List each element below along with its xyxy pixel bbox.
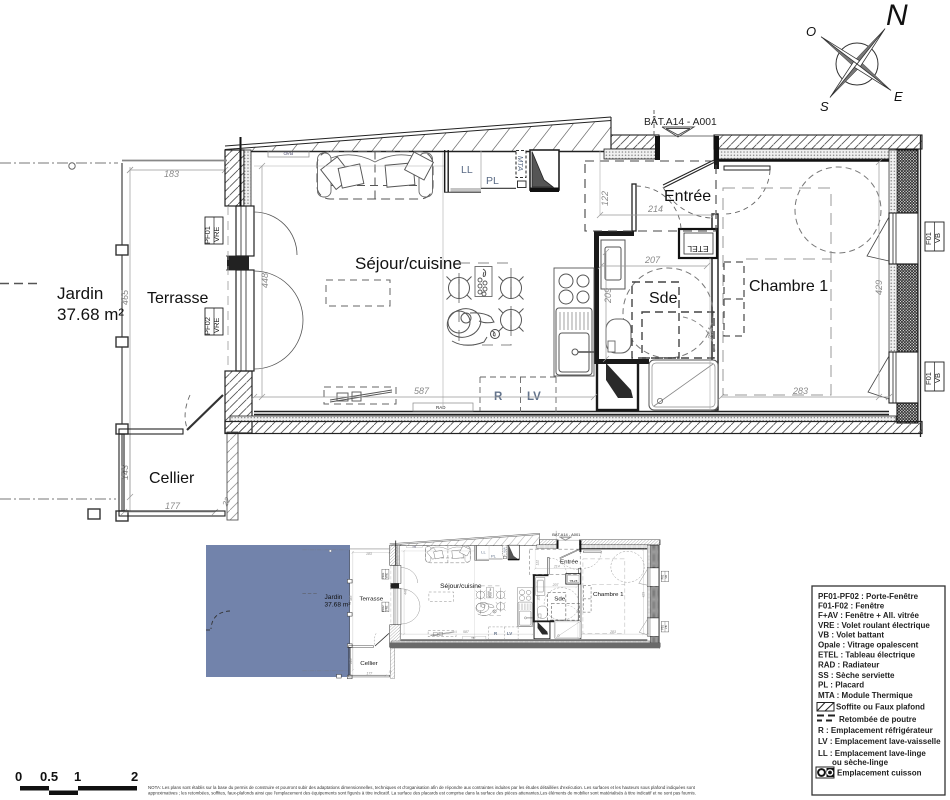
svg-text:PF01-PF02 : Porte-Fenêtre: PF01-PF02 : Porte-Fenêtre xyxy=(818,592,919,601)
svg-text:Entrée: Entrée xyxy=(664,188,711,205)
svg-text:429: 429 xyxy=(874,280,884,295)
svg-text:Séjour/cuisine: Séjour/cuisine xyxy=(355,254,462,273)
svg-text:ETEL: ETEL xyxy=(687,244,709,254)
svg-text:VB : Volet battant: VB : Volet battant xyxy=(818,631,884,640)
svg-text:RAD: RAD xyxy=(436,405,446,410)
svg-text:VRE: VRE xyxy=(212,318,221,333)
svg-text:448: 448 xyxy=(260,273,270,288)
svg-text:PF01: PF01 xyxy=(203,226,212,244)
svg-text:143: 143 xyxy=(120,465,130,480)
svg-text:209: 209 xyxy=(603,288,613,304)
svg-text:R : Emplacement réfrigérateur: R : Emplacement réfrigérateur xyxy=(818,726,933,735)
svg-text:approximatives ; les retombées: approximatives ; les retombées, soffites… xyxy=(148,791,696,796)
svg-text:F01-F02 : Fenêtre: F01-F02 : Fenêtre xyxy=(818,602,885,611)
svg-text:SS : Sèche serviette: SS : Sèche serviette xyxy=(818,671,895,680)
svg-text:PL : Placard: PL : Placard xyxy=(818,680,864,689)
svg-text:O: O xyxy=(806,24,816,39)
svg-text:LL : Emplacement lave-linge: LL : Emplacement lave-linge xyxy=(818,749,926,758)
svg-text:VB: VB xyxy=(933,233,942,243)
svg-text:183: 183 xyxy=(164,169,179,179)
svg-text:NOTA: Les plans sont établis s: NOTA: Les plans sont établis sur la base… xyxy=(148,785,696,790)
svg-text:F01: F01 xyxy=(924,232,933,245)
svg-text:MTA : Module Thermique: MTA : Module Thermique xyxy=(818,691,913,700)
svg-text:ETEL : Tableau électrique: ETEL : Tableau électrique xyxy=(818,651,916,660)
svg-text:N: N xyxy=(886,0,908,32)
svg-text:RAD: RAD xyxy=(283,151,293,156)
svg-text:Retombée de poutre: Retombée de poutre xyxy=(839,715,917,724)
svg-text:PF02: PF02 xyxy=(203,317,212,335)
svg-text:Cellier: Cellier xyxy=(149,470,195,487)
svg-text:Jardin: Jardin xyxy=(57,284,103,303)
svg-text:S: S xyxy=(820,99,829,114)
svg-text:VB: VB xyxy=(933,373,942,383)
svg-text:0.5: 0.5 xyxy=(40,769,58,784)
svg-text:37.68 m²: 37.68 m² xyxy=(57,305,124,324)
svg-text:RAD : Radiateur: RAD : Radiateur xyxy=(818,661,879,670)
svg-text:ou sèche-linge: ou sèche-linge xyxy=(832,758,889,767)
svg-text:465: 465 xyxy=(120,289,130,305)
svg-text:2: 2 xyxy=(131,769,138,784)
svg-text:Emplacement cuisson: Emplacement cuisson xyxy=(837,768,922,777)
svg-text:E: E xyxy=(894,89,903,104)
svg-text:LL: LL xyxy=(461,164,473,176)
svg-text:177: 177 xyxy=(165,501,181,511)
svg-text:Terrasse: Terrasse xyxy=(147,290,208,307)
svg-text:BÂT.A14 - A001: BÂT.A14 - A001 xyxy=(644,115,717,128)
svg-text:VRE : Volet roulant électrique: VRE : Volet roulant électrique xyxy=(818,621,930,630)
svg-text:F01: F01 xyxy=(924,372,933,385)
svg-text:LV : Emplacement lave-vaissell: LV : Emplacement lave-vaisselle xyxy=(818,737,941,746)
svg-text:MTA: MTA xyxy=(516,156,525,171)
svg-text:Chambre 1: Chambre 1 xyxy=(749,278,828,295)
svg-text:254: 254 xyxy=(708,327,715,340)
svg-text:587: 587 xyxy=(414,386,430,396)
svg-text:VRE: VRE xyxy=(212,227,221,242)
svg-text:214: 214 xyxy=(647,204,663,214)
svg-text:F+AV : Fenêtre + All. vitrée: F+AV : Fenêtre + All. vitrée xyxy=(818,611,919,620)
svg-text:283: 283 xyxy=(792,386,808,396)
svg-text:Opale : Vitrage opalescent: Opale : Vitrage opalescent xyxy=(818,641,919,650)
svg-text:Sde: Sde xyxy=(649,290,678,307)
svg-text:0: 0 xyxy=(15,769,22,784)
svg-text:PL: PL xyxy=(486,175,499,187)
svg-text:Soffite ou Faux plafond: Soffite ou Faux plafond xyxy=(836,703,925,712)
svg-text:1: 1 xyxy=(74,769,81,784)
svg-text:207: 207 xyxy=(644,255,661,265)
svg-text:122: 122 xyxy=(600,191,610,206)
